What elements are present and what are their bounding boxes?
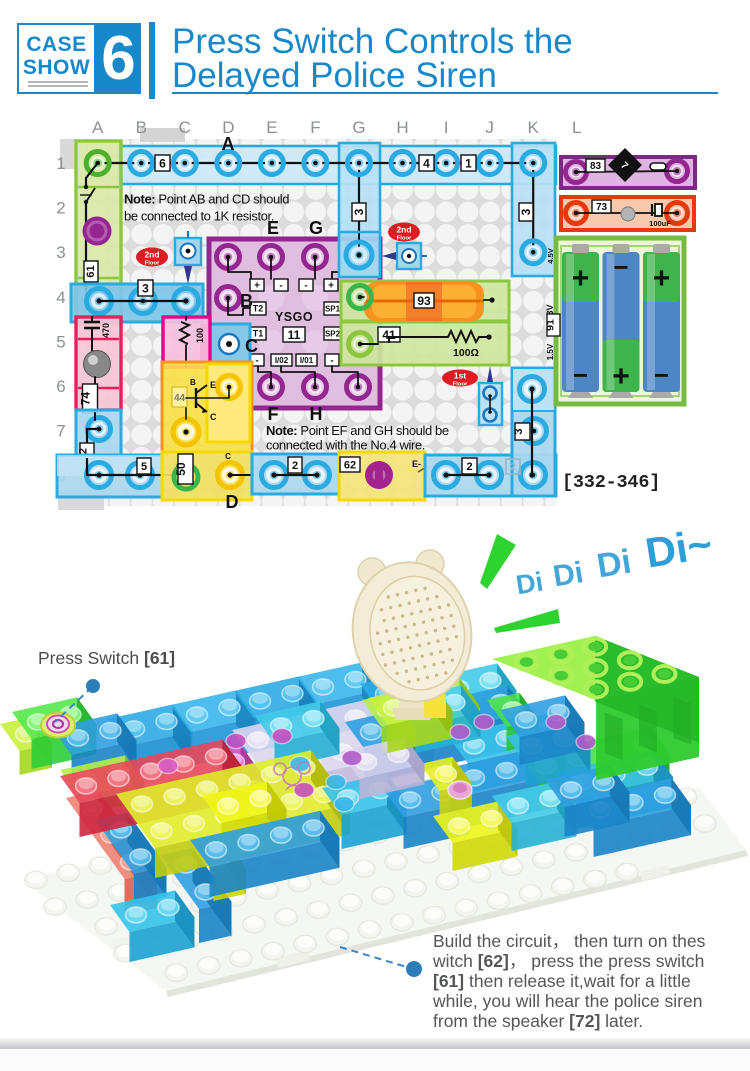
svg-text:Di: Di — [551, 556, 586, 593]
svg-text:Di: Di — [514, 566, 545, 600]
svg-text:Di: Di — [594, 543, 634, 586]
svg-text:Di~: Di~ — [642, 520, 715, 577]
